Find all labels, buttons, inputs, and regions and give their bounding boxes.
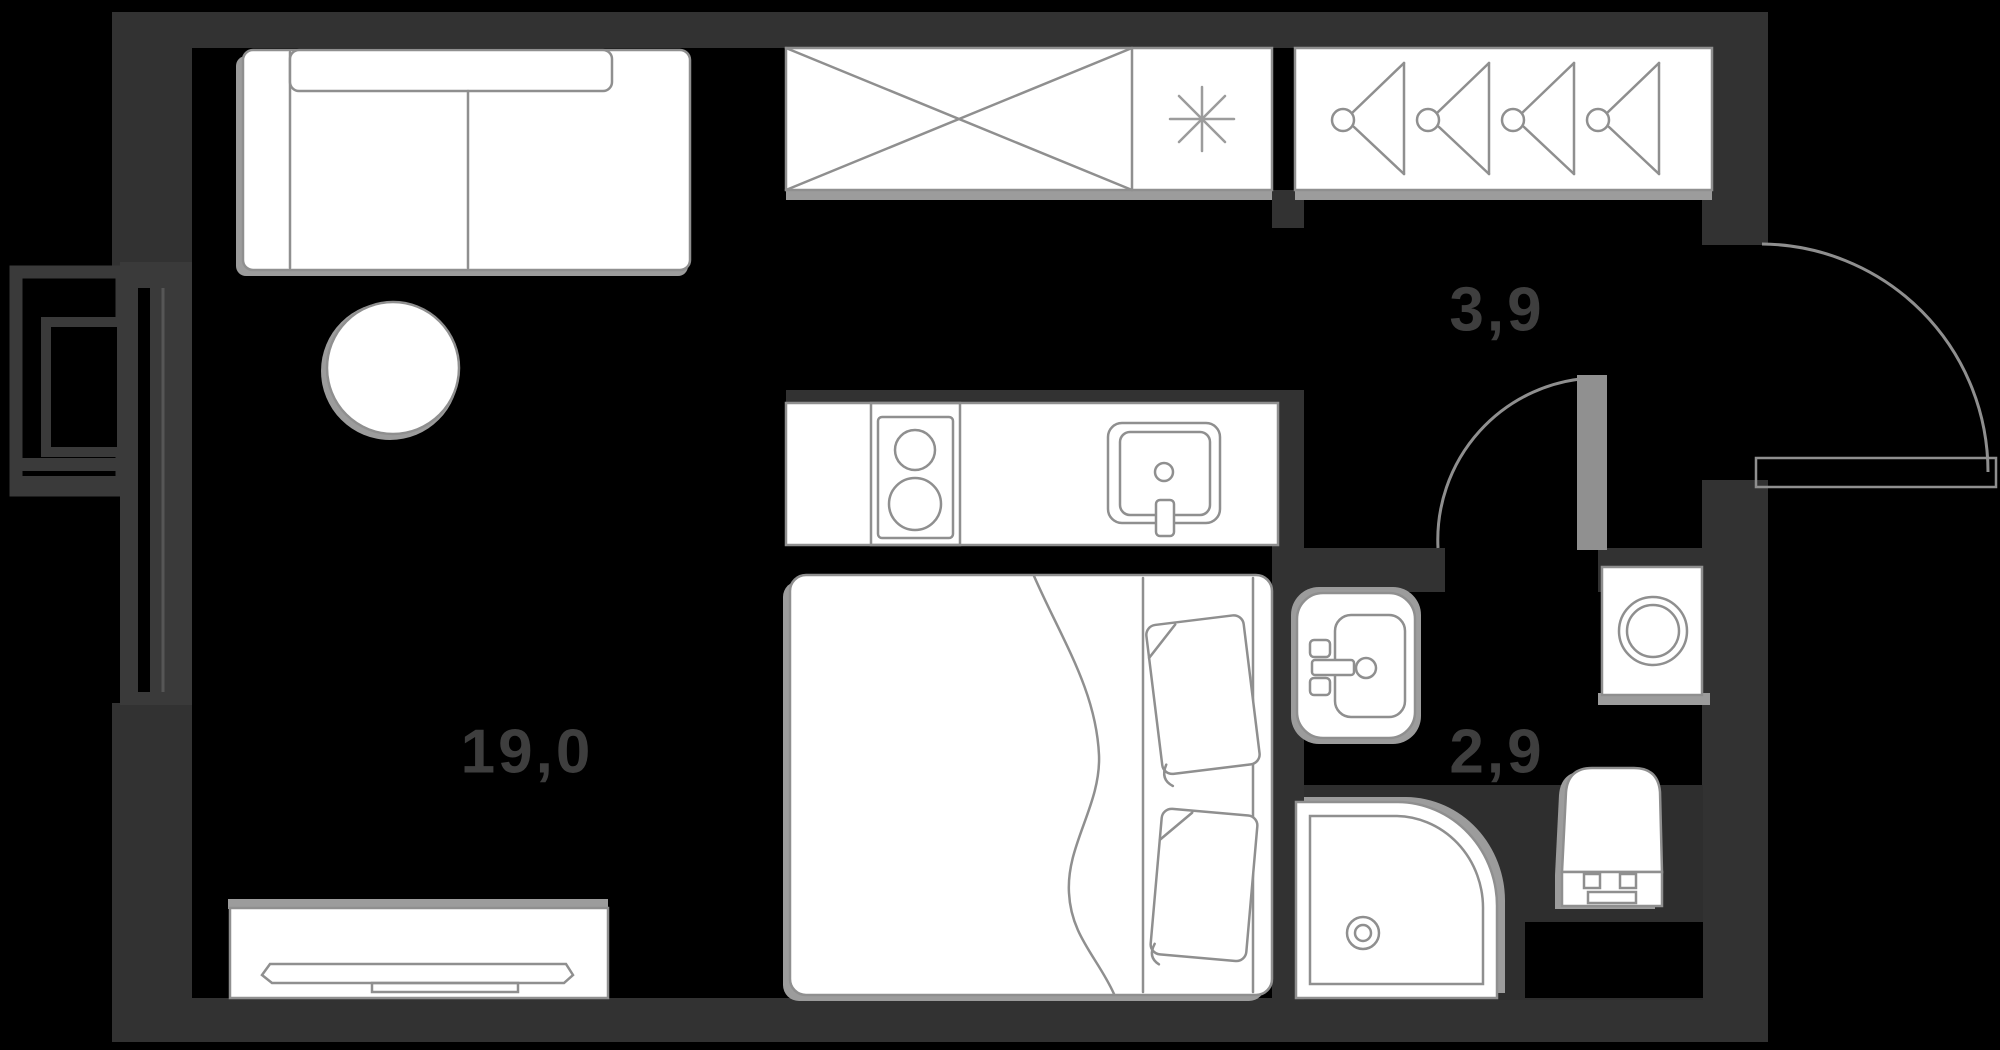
entry-door xyxy=(1756,244,1996,487)
wardrobe xyxy=(786,48,1272,200)
bathroom-niche xyxy=(1525,922,1703,998)
tv-stand xyxy=(228,899,608,998)
pillow xyxy=(1145,614,1262,787)
open-window-sash xyxy=(16,272,122,490)
shower-icon xyxy=(1296,797,1505,998)
floor-plan: 19,0 3,9 2,9 xyxy=(0,0,2000,1050)
refrigerator-icon xyxy=(1170,87,1234,151)
washing-machine-icon xyxy=(1598,567,1710,705)
living-room-area-label: 19,0 xyxy=(461,717,594,788)
entry-door-swing-arc xyxy=(1762,244,1988,472)
toilet-icon xyxy=(1555,768,1662,909)
pillow xyxy=(1149,808,1258,972)
bathroom-door-leaf xyxy=(1577,375,1607,550)
hallway-area-label: 3,9 xyxy=(1449,275,1544,346)
window xyxy=(16,262,192,705)
sofa xyxy=(236,50,690,276)
bathroom-door xyxy=(1438,375,1607,550)
bed xyxy=(783,575,1272,1001)
closet-hangers xyxy=(1295,48,1712,200)
bathroom-area-label: 2,9 xyxy=(1449,717,1544,788)
round-table xyxy=(321,302,459,440)
bathroom-door-swing-arc xyxy=(1438,378,1592,548)
floor-plan-drawing xyxy=(0,0,2000,1050)
bathroom-sink-icon xyxy=(1291,587,1421,744)
entry-door-leaf xyxy=(1756,458,1996,487)
kitchen-counter xyxy=(786,403,1278,545)
